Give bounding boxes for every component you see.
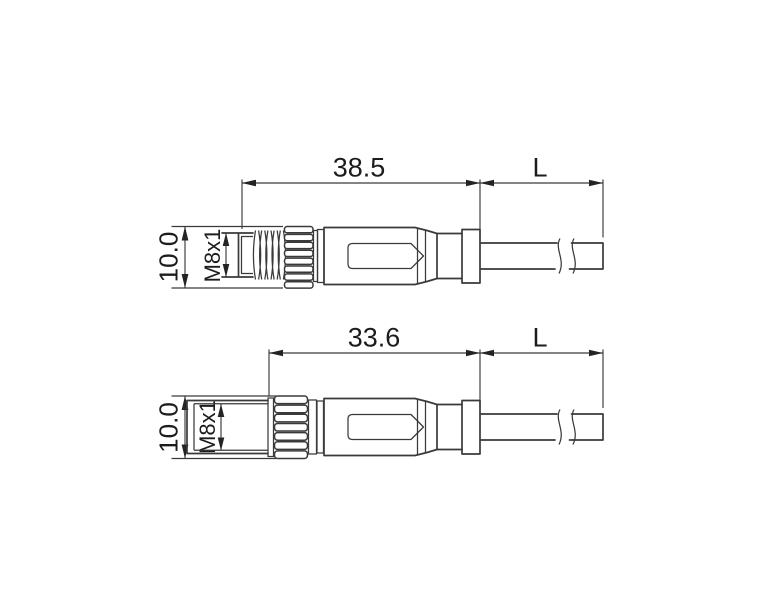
male-thread-dimension: M8x1 xyxy=(200,229,229,283)
female-connector-figure xyxy=(187,396,603,459)
strain-relief-neck xyxy=(437,405,462,450)
extension-lines xyxy=(269,350,603,409)
body-grip-slot xyxy=(348,415,424,440)
male-thread-label: M8x1 xyxy=(200,229,225,283)
body-taper-rings xyxy=(418,399,426,455)
washer-ring xyxy=(268,398,274,457)
male-connector-drawing: 38.5 L 10.0 M8x1 xyxy=(154,153,604,289)
body-grip-slot xyxy=(348,244,424,269)
pilot-chamfer xyxy=(242,237,254,274)
male-connector-figure xyxy=(222,227,603,289)
female-diameter-label: 10.0 xyxy=(154,402,184,453)
female-thread-label: M8x1 xyxy=(195,400,220,454)
body-taper-rings xyxy=(418,228,426,284)
female-length-dimensions: 33.6 L xyxy=(269,323,603,409)
male-diameter-label: 10.0 xyxy=(154,232,184,283)
female-connector-length-label: 33.6 xyxy=(348,323,401,353)
washer-rings xyxy=(309,400,324,454)
female-cable-length-label: L xyxy=(532,323,547,353)
strain-relief-neck xyxy=(437,234,462,279)
technical-drawing: 38.5 L 10.0 M8x1 xyxy=(0,0,767,597)
cable-collar xyxy=(462,230,480,284)
knurled-nut xyxy=(285,227,314,289)
female-connector-drawing: 33.6 L 10.0 M8x1 xyxy=(154,323,604,459)
connector-body xyxy=(324,228,437,285)
male-cable-length-label: L xyxy=(532,153,547,183)
thread-section xyxy=(253,231,285,280)
connector-body xyxy=(324,399,437,456)
cable-collar xyxy=(462,401,480,455)
male-length-dimensions: 38.5 L xyxy=(242,153,603,238)
male-connector-length-label: 38.5 xyxy=(333,153,386,183)
knurled-nut xyxy=(275,396,308,459)
cable xyxy=(480,414,603,440)
washer-rings xyxy=(314,230,325,283)
cable xyxy=(480,243,603,269)
drawing-canvas: 38.5 L 10.0 M8x1 xyxy=(0,0,767,597)
female-thread-dimension: M8x1 xyxy=(195,400,224,454)
